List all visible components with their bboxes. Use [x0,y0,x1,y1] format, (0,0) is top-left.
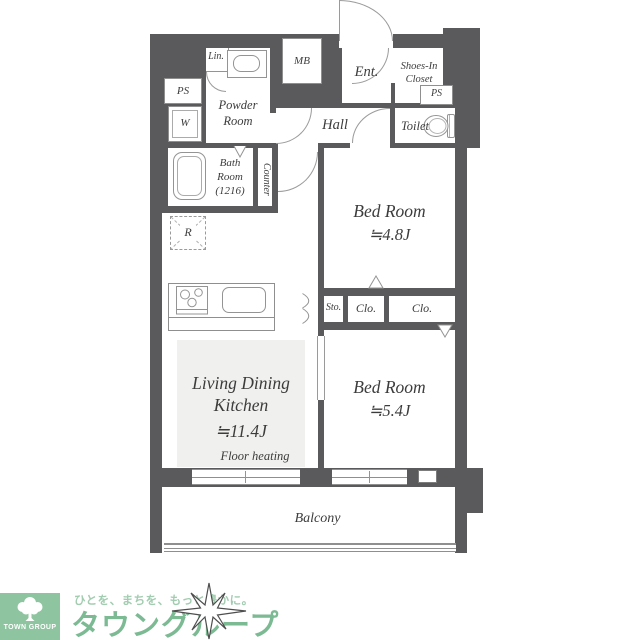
closet1-label: Clo. [348,301,384,316]
sparkle-star-icon [168,582,248,640]
ldk-window [192,469,300,485]
storage-label: Sto. [321,302,346,315]
bedroom1-size-label: ≒4.8J [324,224,455,245]
ldk-name-label: Living Dining Kitchen [177,372,305,417]
bedroom1-door-opening [350,143,390,148]
refrigerator-label: R [180,225,196,240]
storage-folding-door-icon [301,293,317,324]
ldk-size-label: ≒11.4J [177,420,305,442]
town-group-label: TOWN GROUP [0,624,60,631]
entrance-door-arc [339,0,393,41]
bedroom2-name-label: Bed Room [324,376,455,398]
closet2-label: Clo. [389,301,455,316]
corridor-opening [278,143,318,148]
wall-notch [418,470,437,483]
refrigerator-space: R [170,216,206,250]
kitchen-lower-cabinet [168,317,275,331]
closet2-door-mark-icon [437,324,453,338]
meter-box-label: MB [282,54,322,68]
bedroom1-name-label: Bed Room [324,200,455,222]
ps-left-label: PS [164,84,202,98]
balcony-label: Balcony [250,510,385,528]
town-group-logo-box: TOWN GROUP [0,593,60,640]
entrance-label: Ent. [342,63,391,82]
washer-label: W [168,116,202,130]
bath-room-label: Bath Room (1216) [204,156,256,198]
sink-icon [222,287,266,313]
powder-room-label: Powder Room [206,97,270,129]
bedroom2-floor [324,330,455,468]
ldk-window-mullion [245,471,246,483]
toilet-label: Toilet [394,118,436,134]
floor-plan-page: R Lin. PS W Powder Room MB Ent. Shoes-In… [0,0,640,640]
hall-label: Hall [300,116,370,135]
balcony-rail [164,543,456,552]
counter-label: Counter [258,153,272,205]
bathtub-icon-inner [177,156,202,196]
ps-right-label: PS [420,88,453,101]
bedroom2-size-label: ≒5.4J [324,400,455,421]
bedroom2-window-mullion [369,471,370,483]
tree-icon [11,596,49,622]
floor-heating-label: Floor heating [205,448,305,464]
closet1-door-mark-icon [368,275,384,289]
linen-label: Lin. [203,51,229,64]
stove-icon [176,286,210,316]
shoes-closet-label: Shoes-In Closet [393,60,445,87]
washbasin-bowl-icon [233,55,260,72]
